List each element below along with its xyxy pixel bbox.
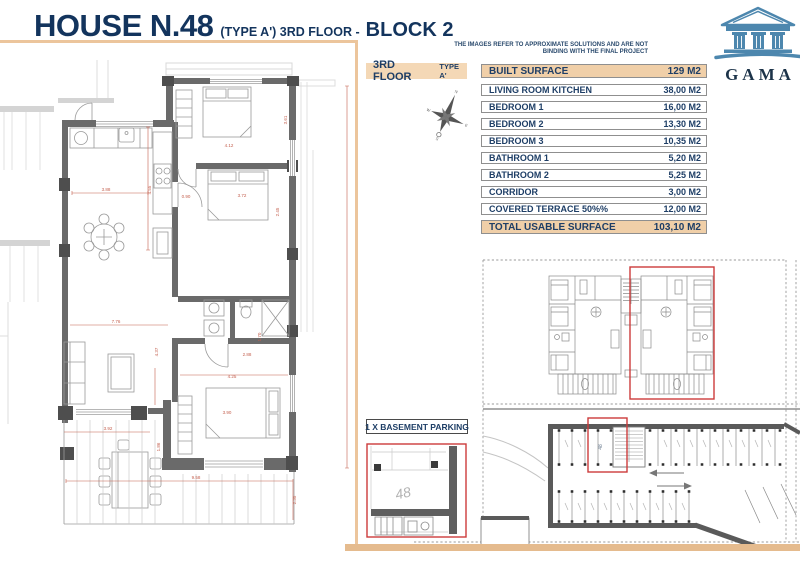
svg-text:3.88: 3.88 [102, 187, 111, 192]
site-plan-drawing [549, 267, 714, 399]
row-label: LIVING ROOM KITCHEN [489, 85, 592, 95]
dimension-lines [64, 86, 349, 520]
row-value: 12,00 M2 [663, 204, 701, 214]
table-row: BEDROOM 2 13,30 M2 [481, 118, 707, 130]
table-row: LIVING ROOM KITCHEN 38,00 M2 [481, 84, 707, 96]
title-block: BLOCK 2 [366, 19, 454, 42]
row-value: 5,20 M2 [668, 153, 701, 163]
table-header-label: BUILT SURFACE [489, 66, 568, 77]
title-floor-type: (TYPE A') 3RD FLOOR - [220, 25, 359, 39]
vertical-divider-line [355, 40, 358, 544]
table-row: BATHROOM 2 5,25 M2 [481, 169, 707, 181]
svg-text:N: N [454, 89, 459, 95]
row-value: 16,00 M2 [663, 102, 701, 112]
row-label: BEDROOM 1 [489, 102, 544, 112]
svg-text:4.55: 4.55 [147, 185, 152, 194]
svg-text:W: W [426, 107, 432, 113]
garage-plan-drawing: 48 [481, 418, 800, 547]
garage-stairwell [613, 427, 645, 467]
table-header-value: 129 M2 [668, 66, 701, 77]
bottom-divider-bar [345, 544, 800, 551]
row-value: 13,30 M2 [663, 119, 701, 129]
gama-logo: GAMA [712, 4, 800, 85]
floor-badge-floor: 3RD FLOOR [373, 59, 434, 83]
svg-text:9.58: 9.58 [192, 475, 201, 480]
gama-logo-text: GAMA [712, 65, 800, 85]
svg-text:2.35: 2.35 [292, 495, 297, 504]
gama-logo-icon [712, 4, 800, 60]
total-value: 103,10 M2 [654, 222, 701, 233]
surface-table: BUILT SURFACE 129 M2 LIVING ROOM KITCHEN… [481, 64, 707, 239]
windows [76, 78, 296, 467]
row-value: 3,00 M2 [668, 187, 701, 197]
row-value: 38,00 M2 [663, 85, 701, 95]
disclaimer-line-2: BINDING WITH THE FINAL PROJECT [420, 49, 648, 56]
svg-text:7.76: 7.76 [112, 319, 121, 324]
parking-detail-drawing: 48 [367, 444, 466, 537]
svg-text:4.37: 4.37 [154, 347, 159, 356]
svg-text:2.88: 2.88 [243, 352, 252, 357]
svg-text:48: 48 [598, 444, 604, 450]
row-value: 10,35 M2 [663, 136, 701, 146]
svg-text:2.45: 2.45 [275, 207, 280, 216]
svg-text:3.72: 3.72 [238, 193, 247, 198]
svg-text:0.90: 0.90 [182, 194, 191, 199]
svg-text:4.12: 4.12 [225, 143, 234, 148]
svg-text:3.61: 3.61 [283, 115, 288, 124]
disclaimer-text: THE IMAGES REFER TO APPROXIMATE SOLUTION… [420, 42, 648, 56]
basement-parking-label: 1 X BASEMENT PARKING [366, 419, 468, 434]
table-total-row: TOTAL USABLE SURFACE 103,10 M2 [481, 220, 707, 234]
svg-text:S: S [435, 136, 440, 142]
row-label: BATHROOM 1 [489, 153, 549, 163]
floor-badge: 3RD FLOOR TYPE A' [366, 63, 467, 79]
table-row: BATHROOM 1 5,20 M2 [481, 152, 707, 164]
table-header-row: BUILT SURFACE 129 M2 [481, 64, 707, 78]
terrace-decking [64, 420, 294, 524]
table-row: CORRIDOR 3,00 M2 [481, 186, 707, 198]
svg-text:4.25: 4.25 [228, 374, 237, 379]
floor-badge-type: TYPE A' [439, 62, 467, 80]
svg-text:E: E [464, 122, 469, 128]
total-label: TOTAL USABLE SURFACE [489, 222, 616, 233]
door-arcs [75, 103, 228, 367]
row-label: COVERED TERRACE 50%% [489, 204, 608, 214]
panel-dashed-borders [414, 260, 800, 542]
svg-text:3.90: 3.90 [223, 410, 232, 415]
row-label: CORRIDOR [489, 187, 538, 197]
table-row: BEDROOM 1 16,00 M2 [481, 101, 707, 113]
row-label: BATHROOM 2 [489, 170, 549, 180]
svg-text:1.86: 1.86 [156, 442, 161, 451]
floor-plan-walls [62, 78, 297, 472]
disclaimer-line-1: THE IMAGES REFER TO APPROXIMATE SOLUTION… [420, 42, 648, 49]
row-label: BEDROOM 3 [489, 136, 544, 146]
title-house-number: HOUSE N.48 [34, 8, 213, 44]
table-row: BEDROOM 3 10,35 M2 [481, 135, 707, 147]
selected-unit-highlight [630, 267, 714, 399]
compass-icon: N E S W [417, 81, 479, 150]
table-row: COVERED TERRACE 50%% 12,00 M2 [481, 203, 707, 215]
row-value: 5,25 M2 [668, 170, 701, 180]
row-label: BEDROOM 2 [489, 119, 544, 129]
svg-text:1.70: 1.70 [257, 332, 262, 341]
page-title: HOUSE N.48 (TYPE A') 3RD FLOOR - BLOCK 2 [34, 8, 453, 44]
svg-text:3.92: 3.92 [104, 426, 113, 431]
plan-sheet: 3.88 4.55 0.90 4.12 3.61 3.72 2.45 2.88 … [0, 0, 800, 562]
